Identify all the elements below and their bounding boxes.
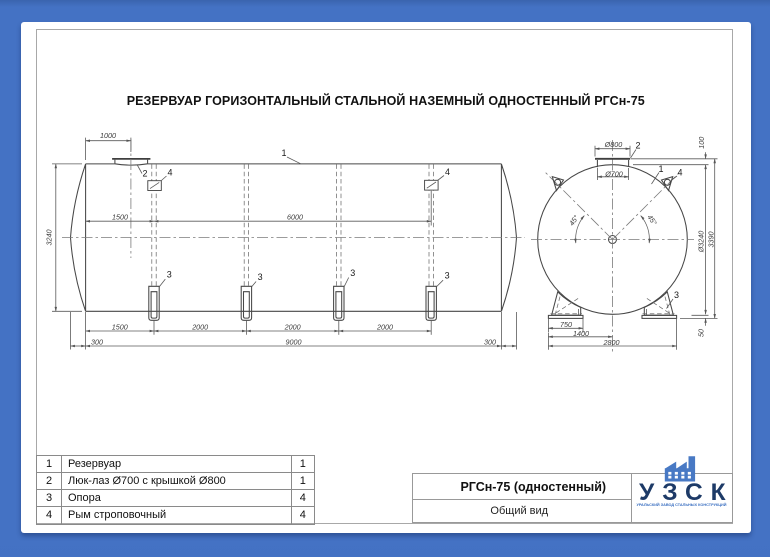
svg-text:3: 3 [167, 270, 172, 280]
svg-text:1400: 1400 [573, 329, 589, 338]
svg-text:3: 3 [674, 290, 679, 300]
svg-text:6000: 6000 [287, 213, 303, 222]
svg-text:4: 4 [678, 168, 683, 178]
svg-text:3: 3 [445, 271, 450, 281]
svg-text:300: 300 [91, 338, 103, 347]
svg-text:3: 3 [258, 272, 263, 282]
svg-text:1: 1 [282, 148, 287, 158]
svg-text:100: 100 [697, 137, 706, 149]
svg-text:1000: 1000 [100, 131, 116, 140]
svg-text:9000: 9000 [286, 338, 302, 347]
svg-text:2: 2 [143, 169, 148, 179]
svg-text:Ø700: Ø700 [604, 169, 623, 178]
svg-text:1: 1 [659, 164, 664, 174]
svg-text:2000: 2000 [191, 323, 208, 332]
svg-text:750: 750 [560, 320, 572, 329]
svg-text:2800: 2800 [603, 338, 620, 347]
svg-text:3: 3 [350, 268, 355, 278]
svg-text:Ø800: Ø800 [604, 140, 623, 149]
svg-text:2000: 2000 [284, 323, 301, 332]
svg-text:300: 300 [484, 338, 496, 347]
svg-text:1500: 1500 [112, 323, 128, 332]
svg-text:4: 4 [168, 168, 173, 178]
svg-text:2: 2 [636, 141, 641, 151]
svg-text:2000: 2000 [376, 323, 393, 332]
svg-text:50: 50 [697, 329, 706, 337]
svg-text:1500: 1500 [112, 213, 128, 222]
svg-text:Ø3240: Ø3240 [697, 231, 706, 254]
svg-text:3240: 3240 [45, 230, 54, 246]
svg-text:4: 4 [445, 167, 450, 177]
svg-text:45°: 45° [645, 213, 659, 227]
svg-text:3390: 3390 [707, 232, 716, 248]
